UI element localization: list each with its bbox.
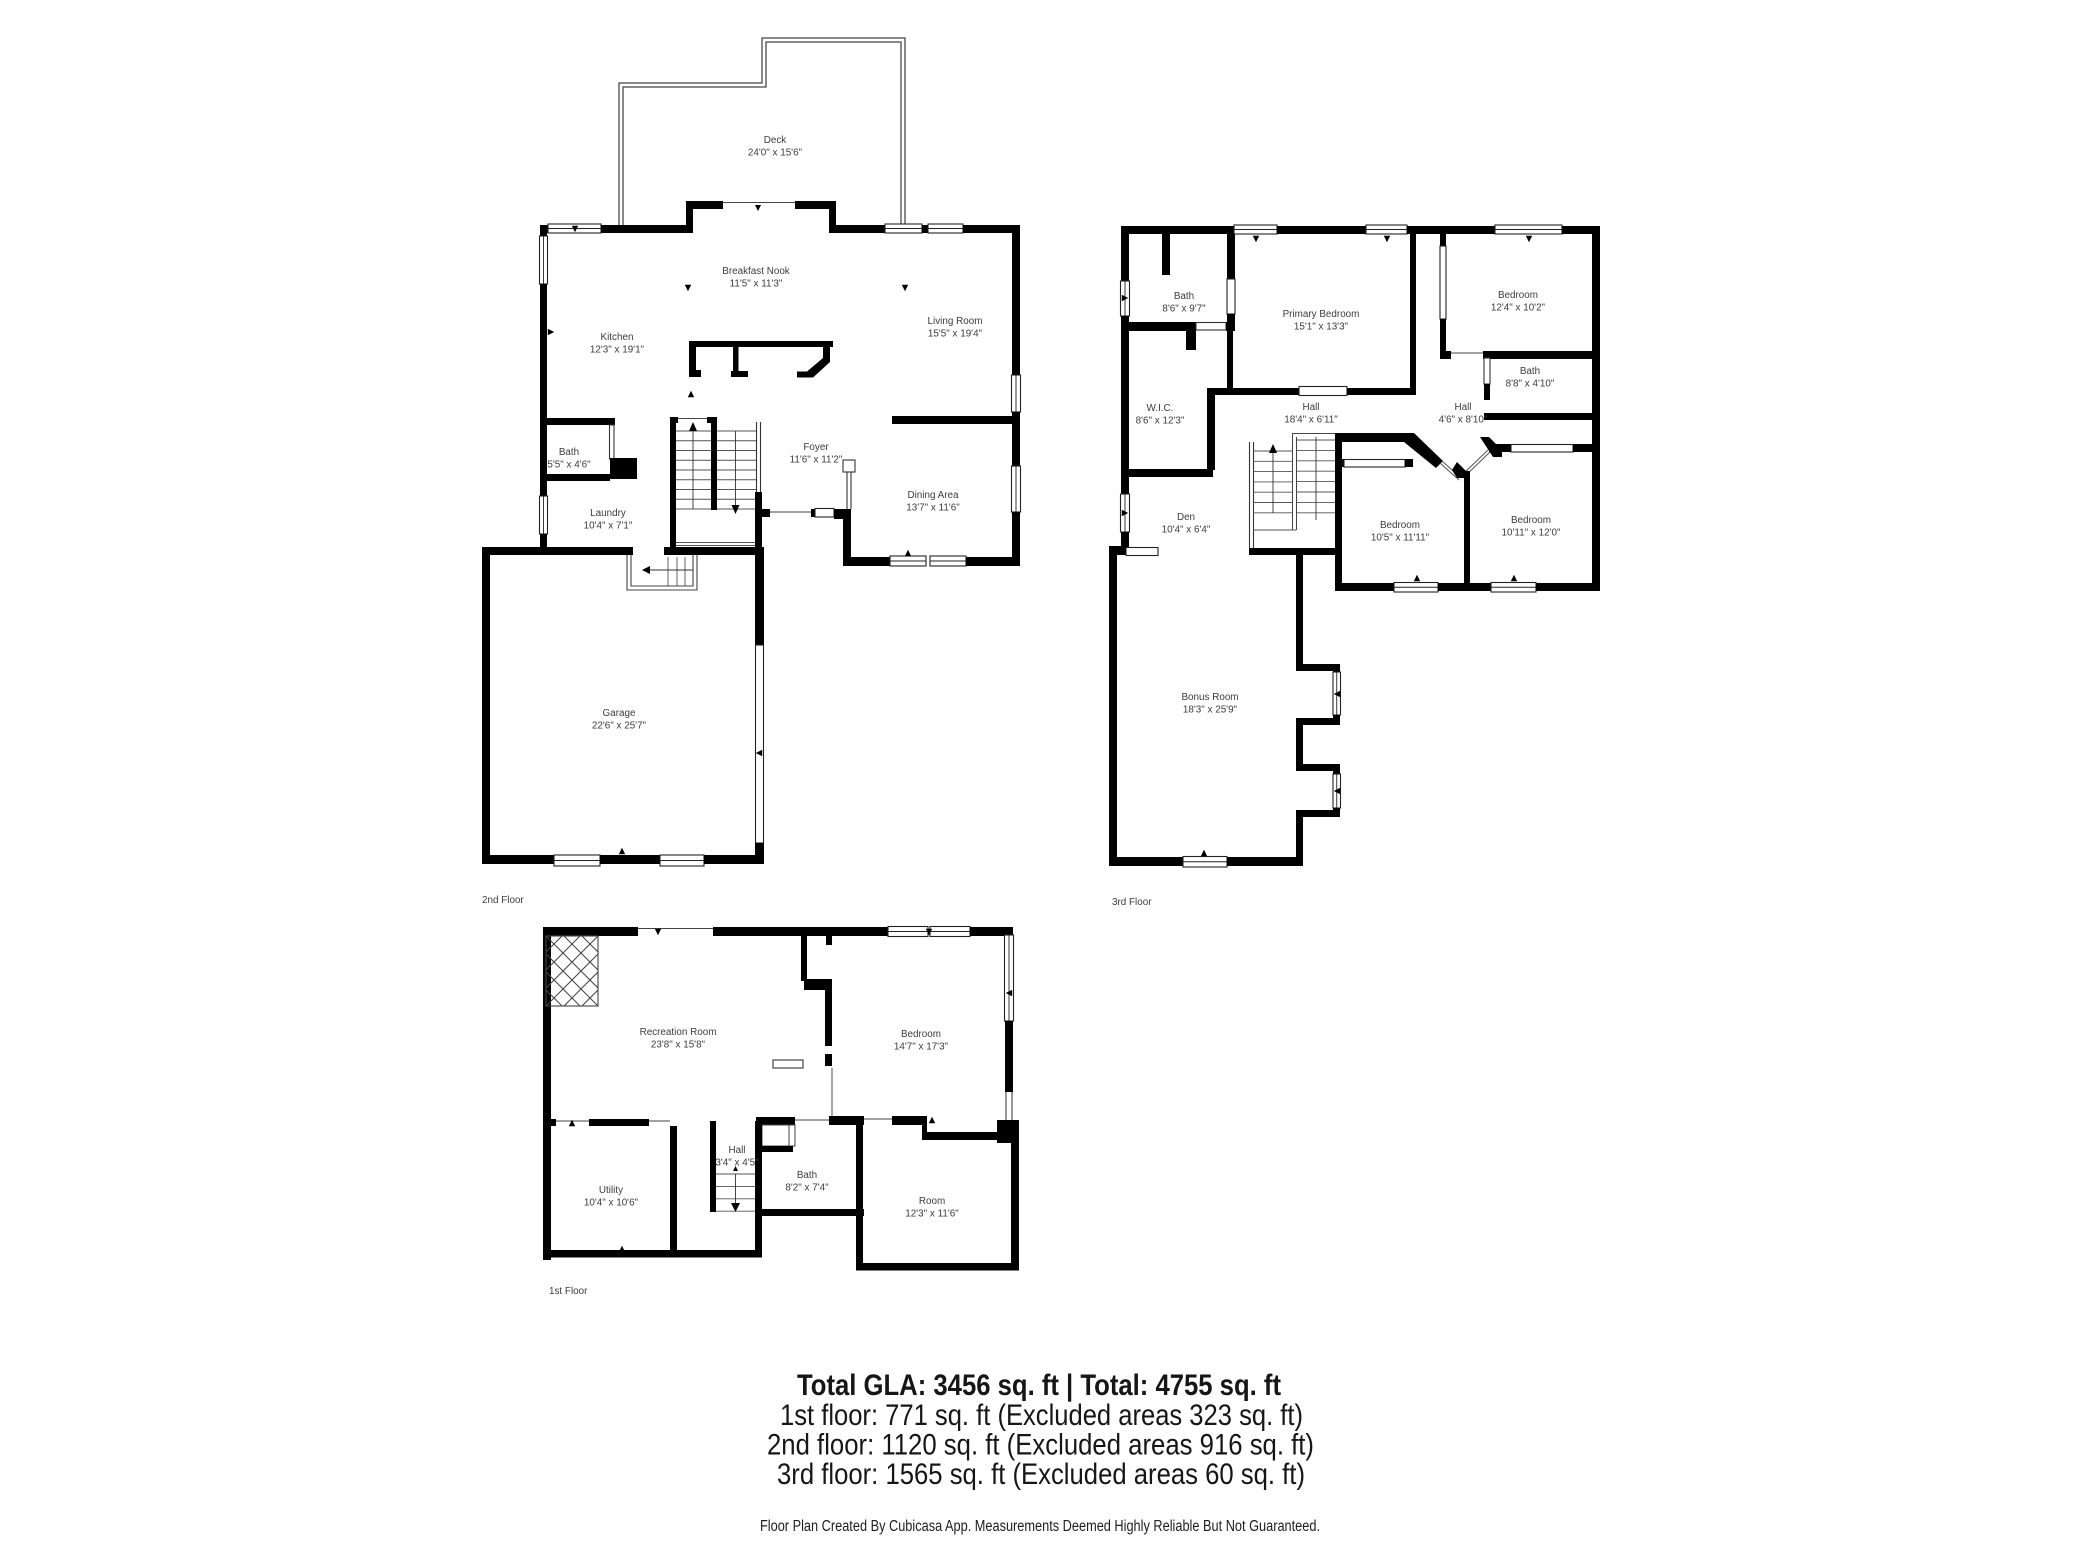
svg-text:10'5" x 11'11": 10'5" x 11'11": [1371, 532, 1430, 543]
svg-text:14'7" x 17'3": 14'7" x 17'3": [894, 1041, 949, 1052]
svg-text:Dining Area: Dining Area: [907, 490, 959, 501]
svg-text:8'6" x 9'7": 8'6" x 9'7": [1162, 303, 1206, 314]
svg-text:1st floor: 771 sq. ft (Exclude: 1st floor: 771 sq. ft (Excluded areas 32…: [780, 1399, 1303, 1432]
svg-text:W.I.C.: W.I.C.: [1147, 403, 1174, 414]
svg-text:8'6" x 12'3": 8'6" x 12'3": [1136, 415, 1185, 426]
svg-text:Hall: Hall: [1302, 402, 1319, 413]
svg-text:11'5" x 11'3": 11'5" x 11'3": [730, 278, 783, 289]
svg-text:15'1" x 13'3": 15'1" x 13'3": [1294, 321, 1349, 332]
svg-text:Bedroom: Bedroom: [1380, 520, 1420, 531]
svg-text:Bath: Bath: [559, 447, 579, 458]
svg-text:Laundry: Laundry: [590, 508, 626, 519]
svg-text:Foyer: Foyer: [803, 442, 829, 453]
svg-text:2nd floor: 1120 sq. ft (Exclud: 2nd floor: 1120 sq. ft (Excluded areas 9…: [767, 1429, 1314, 1462]
svg-text:Bedroom: Bedroom: [901, 1029, 941, 1040]
svg-text:1st Floor: 1st Floor: [549, 1286, 588, 1297]
svg-text:Room: Room: [919, 1196, 945, 1207]
svg-text:Living Room: Living Room: [928, 316, 983, 327]
svg-text:Breakfast Nook: Breakfast Nook: [722, 266, 790, 277]
svg-text:Total GLA: 3456 sq. ft | Total: Total GLA: 3456 sq. ft | Total: 4755 sq.…: [797, 1369, 1281, 1402]
svg-text:24'0" x 15'6": 24'0" x 15'6": [748, 147, 803, 158]
svg-text:8'2" x 7'4": 8'2" x 7'4": [785, 1182, 829, 1193]
svg-text:10'4" x 6'4": 10'4" x 6'4": [1162, 524, 1211, 535]
svg-text:Bedroom: Bedroom: [1498, 290, 1538, 301]
svg-text:12'3" x 19'1": 12'3" x 19'1": [590, 344, 645, 355]
svg-text:Deck: Deck: [764, 135, 787, 146]
svg-text:15'5" x 19'4": 15'5" x 19'4": [928, 328, 983, 339]
svg-text:Hall: Hall: [1454, 402, 1471, 413]
svg-text:5'5" x 4'6": 5'5" x 4'6": [547, 459, 591, 470]
svg-text:Kitchen: Kitchen: [601, 332, 634, 343]
svg-text:4'6" x 8'10": 4'6" x 8'10": [1439, 414, 1488, 425]
svg-text:13'7" x 11'6": 13'7" x 11'6": [906, 502, 960, 513]
svg-text:Bath: Bath: [1520, 366, 1540, 377]
svg-text:Den: Den: [1177, 512, 1195, 523]
svg-text:22'6" x 25'7": 22'6" x 25'7": [592, 720, 647, 731]
svg-text:8'8" x 4'10": 8'8" x 4'10": [1506, 378, 1555, 389]
svg-text:2nd Floor: 2nd Floor: [482, 895, 524, 906]
svg-text:10'11" x 12'0": 10'11" x 12'0": [1502, 527, 1561, 538]
svg-text:Recreation Room: Recreation Room: [640, 1027, 717, 1038]
svg-text:Bath: Bath: [1174, 291, 1194, 302]
svg-text:3rd Floor: 3rd Floor: [1112, 897, 1152, 908]
svg-text:3rd floor: 1565 sq. ft (Exclud: 3rd floor: 1565 sq. ft (Excluded areas 6…: [777, 1458, 1305, 1491]
svg-text:3'4" x 4'5": 3'4" x 4'5": [715, 1157, 759, 1168]
svg-text:Primary Bedroom: Primary Bedroom: [1283, 309, 1360, 320]
svg-text:10'4" x 7'1": 10'4" x 7'1": [584, 520, 633, 531]
svg-text:Hall: Hall: [728, 1145, 745, 1156]
svg-text:Bedroom: Bedroom: [1511, 515, 1551, 526]
svg-text:Bath: Bath: [797, 1170, 817, 1181]
svg-text:Floor Plan Created By Cubicasa: Floor Plan Created By Cubicasa App. Meas…: [760, 1518, 1320, 1535]
svg-text:Bonus Room: Bonus Room: [1181, 692, 1238, 703]
svg-text:11'6" x 11'2": 11'6" x 11'2": [790, 454, 843, 465]
svg-text:Garage: Garage: [603, 708, 636, 719]
svg-text:Utility: Utility: [599, 1185, 623, 1196]
svg-text:10'4" x 10'6": 10'4" x 10'6": [584, 1197, 639, 1208]
svg-text:12'4" x 10'2": 12'4" x 10'2": [1491, 302, 1546, 313]
svg-text:18'3" x 25'9": 18'3" x 25'9": [1183, 704, 1238, 715]
svg-text:23'8" x 15'8": 23'8" x 15'8": [651, 1039, 706, 1050]
svg-text:12'3" x 11'6": 12'3" x 11'6": [905, 1208, 959, 1219]
svg-text:18'4" x 6'11": 18'4" x 6'11": [1284, 414, 1338, 425]
